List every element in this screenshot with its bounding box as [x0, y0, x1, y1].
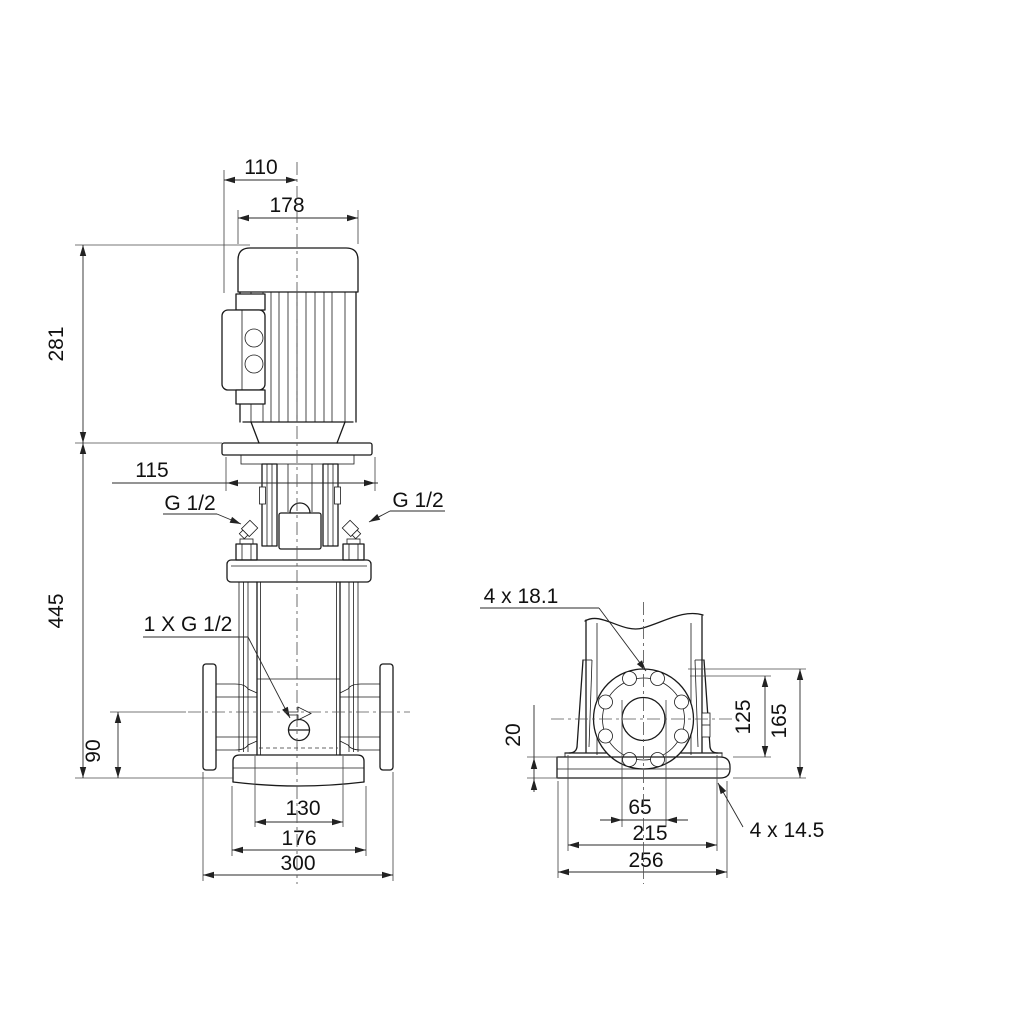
guard-slot-right [335, 487, 341, 504]
motor-fan-cover [238, 248, 358, 292]
cable-gland-top [245, 329, 263, 347]
dim-chamber-width-label: 130 [285, 797, 320, 820]
suction-flange [203, 664, 257, 770]
base-holes-label: 4 x 14.5 [750, 819, 825, 842]
flange-holes-label: 4 x 18.1 [484, 585, 559, 608]
dim-stool-width-label: 115 [135, 459, 168, 482]
nameplate-edge [702, 713, 710, 737]
dim-pump-height-label: 445 [45, 593, 68, 628]
pump-head-flange [227, 560, 371, 582]
dim-flange-top-height-label: 165 [768, 703, 791, 738]
chamber-sleeve [239, 582, 358, 755]
dim-motor-width-label: 178 [269, 194, 304, 217]
pump-base [233, 748, 364, 786]
pump-dimensional-drawing: 110 178 281 115 445 90 G 1/2 G 1/2 1 X G… [0, 0, 1024, 1024]
dim-motor-height-label: 281 [45, 326, 68, 361]
side-view: 4 x 18.1 20 65 125 165 215 256 4 x 14.5 [480, 585, 824, 878]
dim-base-width-label: 176 [281, 827, 316, 850]
dim-base-thickness-label: 20 [502, 723, 525, 746]
break-line [585, 613, 703, 629]
shaft-coupling-dome [290, 503, 310, 513]
gauge-port-left-label: G 1/2 [164, 492, 215, 515]
dim-port-to-port-label: 300 [280, 852, 315, 875]
guard-slot-left [260, 487, 266, 504]
technical-drawing-canvas: 110 178 281 115 445 90 G 1/2 G 1/2 1 X G… [0, 0, 1024, 1024]
dim-hole-center-height-label: 125 [732, 699, 755, 734]
discharge-flange [340, 664, 393, 770]
dim-port-height-label: 90 [82, 739, 105, 762]
front-view: 110 178 281 115 445 90 G 1/2 G 1/2 1 X G… [45, 156, 445, 881]
gauge-plug-right [342, 520, 362, 540]
shaft-coupling [279, 513, 321, 549]
flow-direction-arrow-icon [288, 707, 311, 720]
dim-fan-cover-width-label: 110 [244, 156, 277, 179]
motor-fins [263, 292, 332, 422]
terminal-box [222, 294, 265, 404]
staybolt-nut-left [236, 539, 257, 560]
center-lines [188, 162, 741, 884]
coupling-lantern [236, 464, 364, 560]
cable-gland-bottom [245, 355, 263, 373]
gauge-plug-left [238, 520, 258, 540]
staybolt-nut-right [343, 539, 364, 560]
front-view-dimensions: 110 178 281 115 445 90 G 1/2 G 1/2 1 X G… [45, 156, 445, 881]
gauge-port-right-label: G 1/2 [392, 489, 443, 512]
dim-base-length-label: 256 [628, 849, 663, 872]
dim-port-bore-label: 65 [628, 796, 651, 819]
drain-port-label: 1 X G 1/2 [144, 613, 233, 636]
dim-foot-hole-spacing-label: 215 [632, 822, 667, 845]
